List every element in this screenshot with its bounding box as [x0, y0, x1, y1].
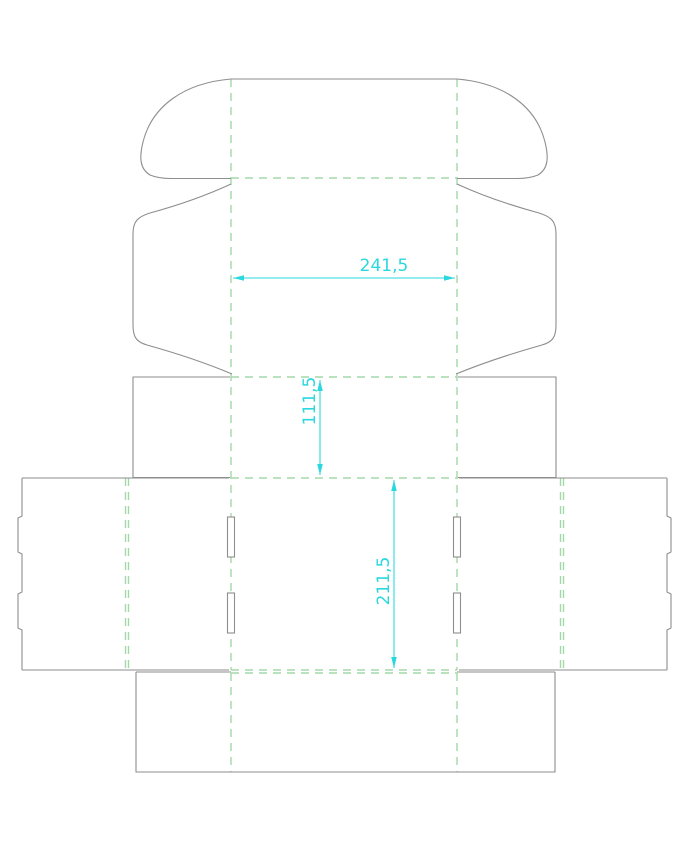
dust-flap-left — [133, 184, 232, 374]
dimension-label-depth: 111,5 — [300, 377, 320, 426]
fold-lines — [126, 79, 564, 772]
dieline-drawing: 241,5 111,5 211,5 — [0, 0, 689, 866]
tuck-flap-right-edge — [667, 478, 671, 670]
lid-ear-right — [457, 79, 547, 179]
lid-ear-left — [141, 79, 231, 179]
bottom-flap-outline — [136, 672, 555, 772]
dimension-label-width: 241,5 — [360, 256, 409, 276]
slot-right-lower — [454, 593, 461, 633]
lock-slots — [228, 517, 461, 633]
slot-left-upper — [228, 517, 235, 557]
cut-lines — [18, 79, 671, 772]
dieline-page: 241,5 111,5 211,5 — [0, 0, 689, 866]
side-panel-upper-left — [133, 377, 230, 478]
dimension-annotations: 241,5 111,5 211,5 — [233, 256, 455, 668]
tuck-flap-left-edge — [18, 478, 22, 670]
side-panel-upper-right — [458, 377, 556, 478]
slot-left-lower — [228, 593, 235, 633]
dust-flap-right — [456, 184, 556, 374]
dimension-label-height: 211,5 — [374, 557, 394, 606]
slot-right-upper — [454, 517, 461, 557]
